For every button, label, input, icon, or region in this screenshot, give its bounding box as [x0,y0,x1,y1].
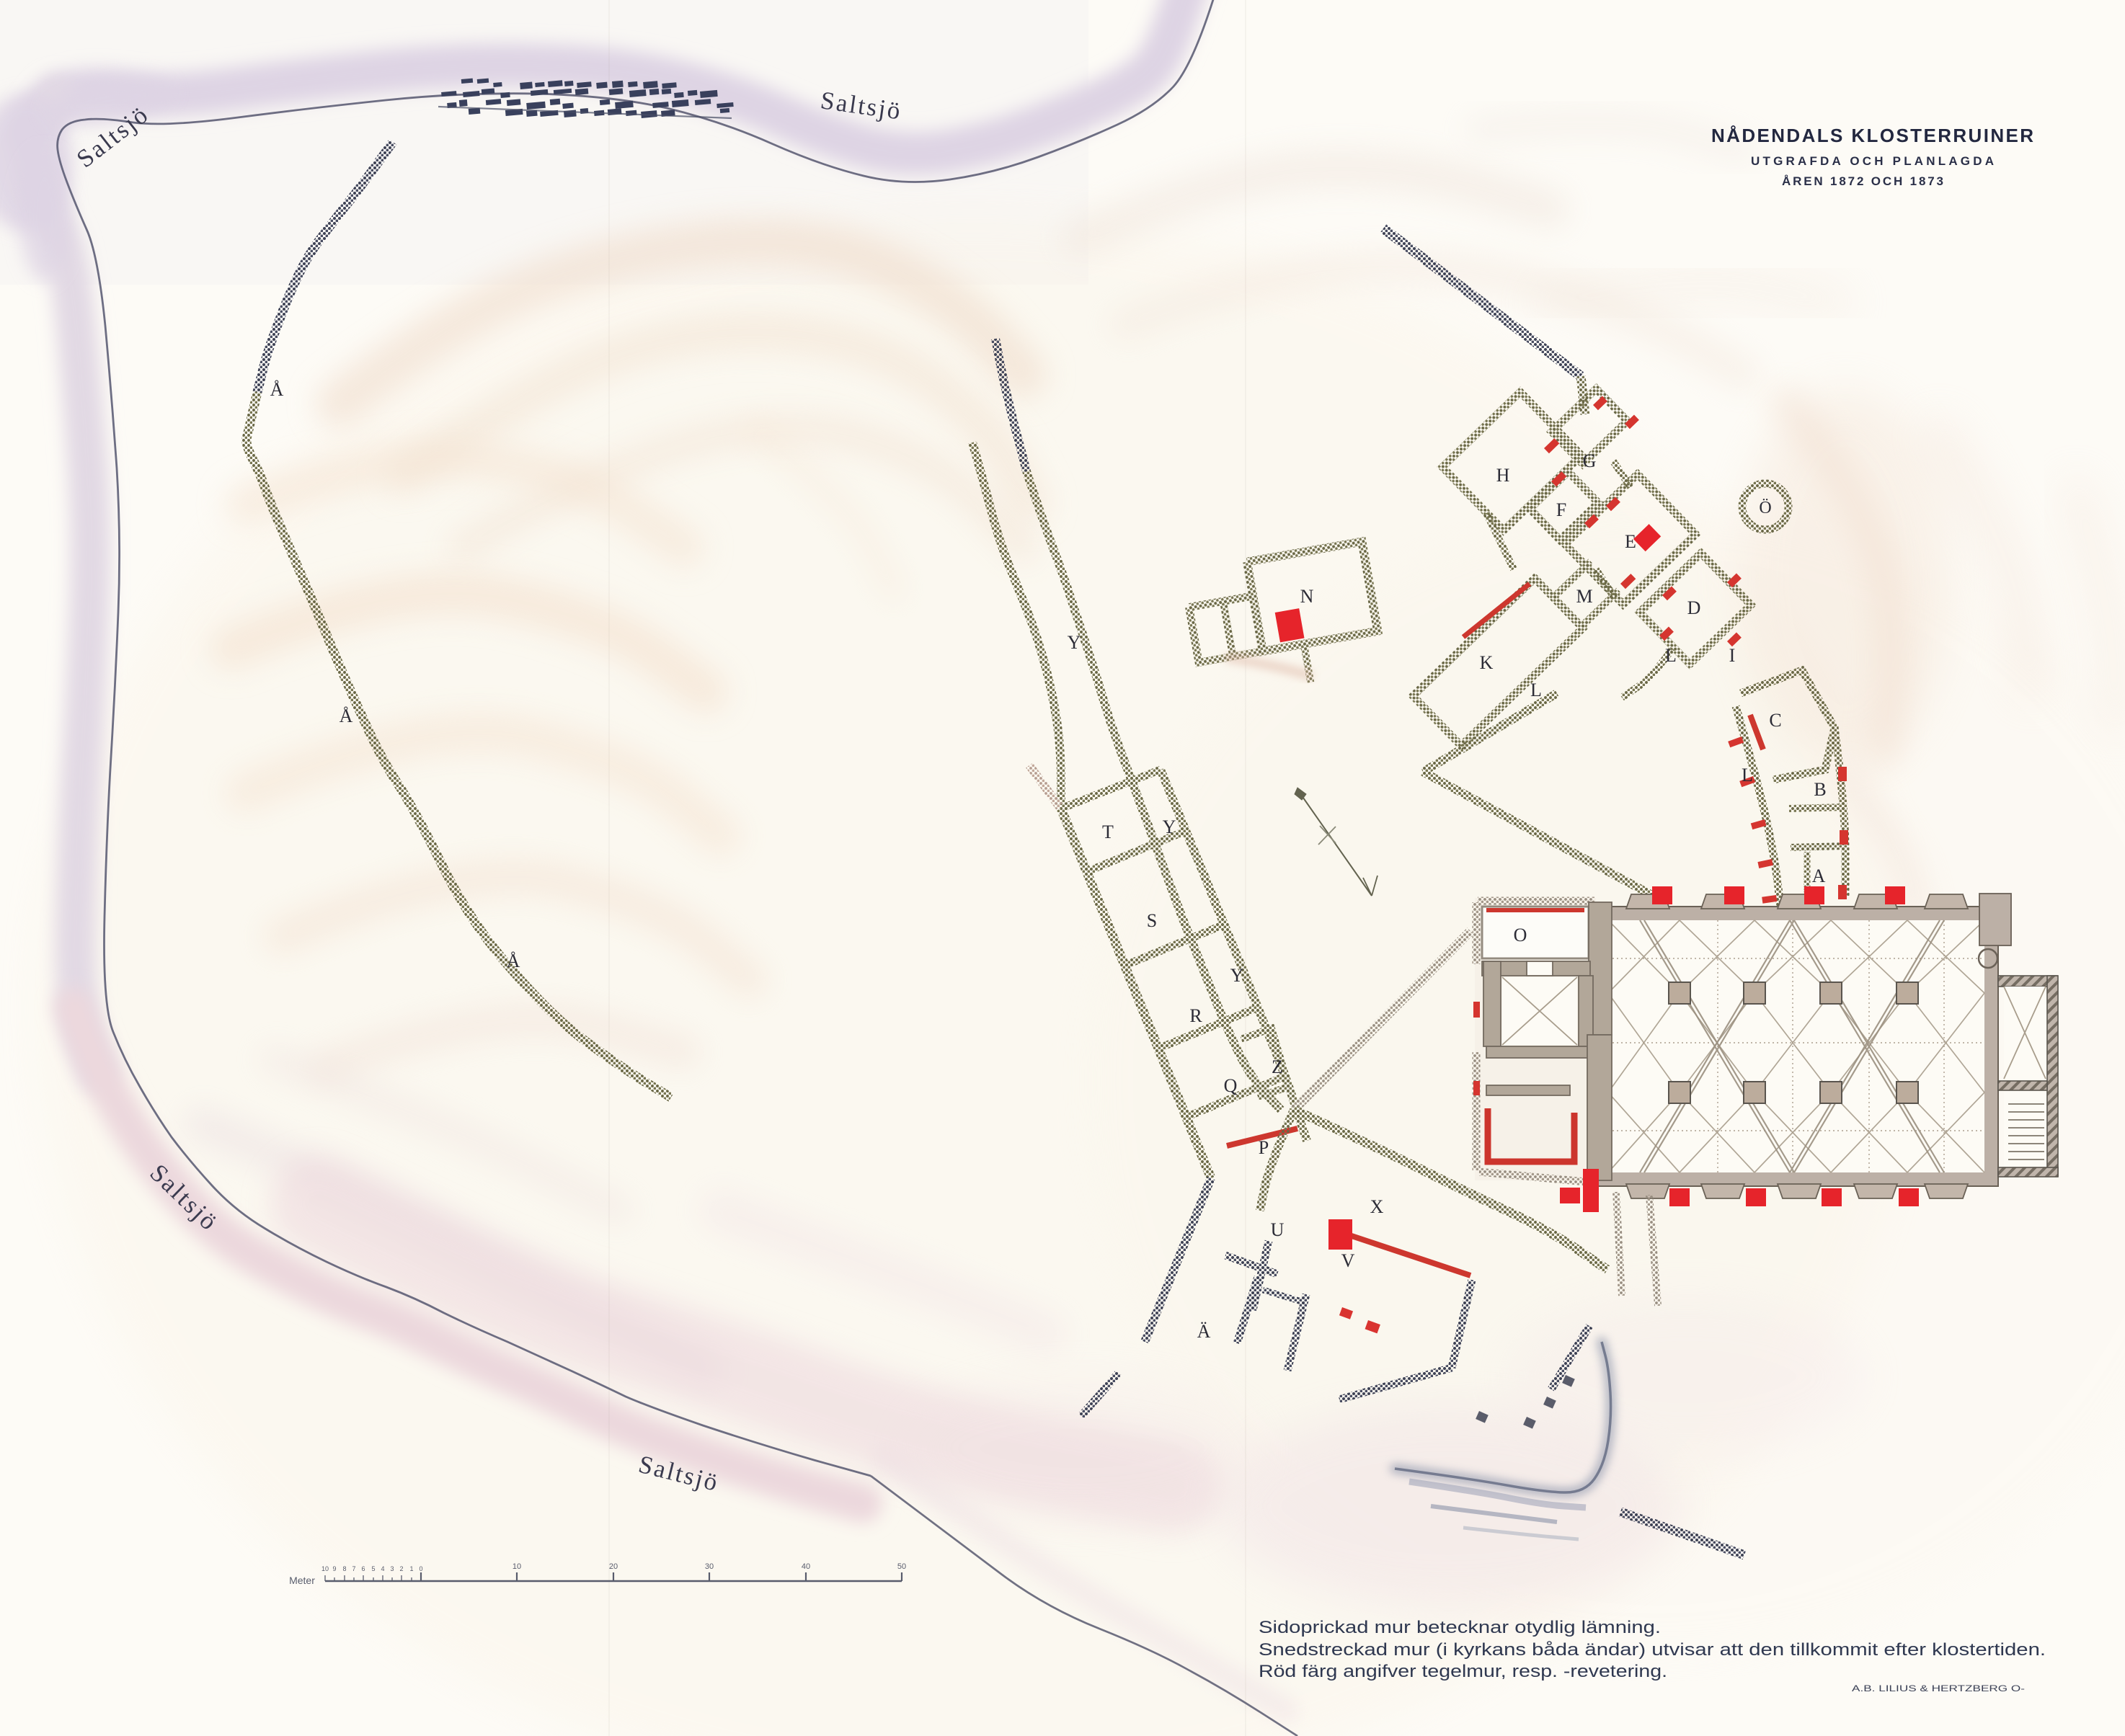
svg-text:4: 4 [381,1565,384,1572]
svg-text:H: H [1496,465,1510,486]
svg-text:C: C [1769,710,1781,731]
svg-text:D: D [1687,597,1701,618]
svg-text:X: X [1370,1196,1384,1217]
svg-text:Ä: Ä [1197,1321,1211,1342]
svg-text:G: G [1583,450,1597,471]
svg-text:7: 7 [352,1565,355,1572]
svg-text:Y: Y [1163,816,1176,837]
svg-text:6: 6 [361,1565,365,1572]
svg-text:1: 1 [409,1565,413,1572]
svg-text:L: L [1530,680,1542,700]
svg-text:Å: Å [507,951,520,971]
svg-text:NÅDENDALS KLOSTERRUINER: NÅDENDALS KLOSTERRUINER [1711,125,2033,146]
svg-text:B: B [1814,779,1826,800]
svg-text:F: F [1556,499,1566,520]
svg-text:S: S [1147,910,1157,931]
svg-text:Snedstreckad mur (i kyrkans bå: Snedstreckad mur (i kyrkans båda ändar) … [1259,1640,2046,1660]
svg-text:Y: Y [1230,965,1244,986]
svg-text:Meter: Meter [289,1575,315,1586]
svg-text:N: N [1300,586,1314,607]
svg-text:0: 0 [419,1565,422,1572]
svg-text:M: M [1576,586,1592,607]
svg-text:Q: Q [1224,1075,1238,1096]
svg-text:10: 10 [321,1565,329,1572]
svg-text:50: 50 [897,1562,906,1571]
svg-text:Å: Å [270,379,284,400]
svg-text:P: P [1259,1137,1269,1158]
svg-text:ÅREN 1872 OCH 1873: ÅREN 1872 OCH 1873 [1782,174,1943,188]
svg-text:10: 10 [513,1562,521,1571]
svg-text:9: 9 [332,1565,336,1572]
svg-text:L: L [1742,765,1753,785]
svg-text:V: V [1341,1250,1355,1271]
svg-text:2: 2 [399,1565,403,1572]
svg-text:Z: Z [1272,1056,1283,1077]
svg-text:L: L [1665,645,1677,666]
svg-text:8: 8 [342,1565,346,1572]
svg-text:Röd färg angifver tegelmur, re: Röd färg angifver tegelmur, resp. -revet… [1259,1662,1667,1681]
svg-text:5: 5 [371,1565,375,1572]
svg-text:R: R [1189,1005,1202,1026]
svg-text:Ö: Ö [1759,499,1771,517]
svg-text:A: A [1812,865,1826,886]
svg-text:40: 40 [802,1562,810,1571]
svg-text:Sidoprickad mur betecknar otyd: Sidoprickad mur betecknar otydlig lämnin… [1259,1618,1661,1637]
svg-text:20: 20 [609,1562,618,1571]
svg-text:O: O [1514,925,1527,945]
svg-text:30: 30 [705,1562,714,1571]
svg-text:U: U [1271,1219,1285,1240]
svg-text:K: K [1480,652,1494,673]
svg-text:Å: Å [340,705,353,726]
svg-text:Y: Y [1068,632,1081,653]
svg-text:T: T [1102,822,1114,842]
svg-text:I: I [1729,645,1736,666]
svg-text:3: 3 [390,1565,394,1572]
svg-text:E: E [1625,531,1636,552]
svg-text:A.B. LILIUS & HERTZBERG O-: A.B. LILIUS & HERTZBERG O- [1852,1683,2025,1693]
